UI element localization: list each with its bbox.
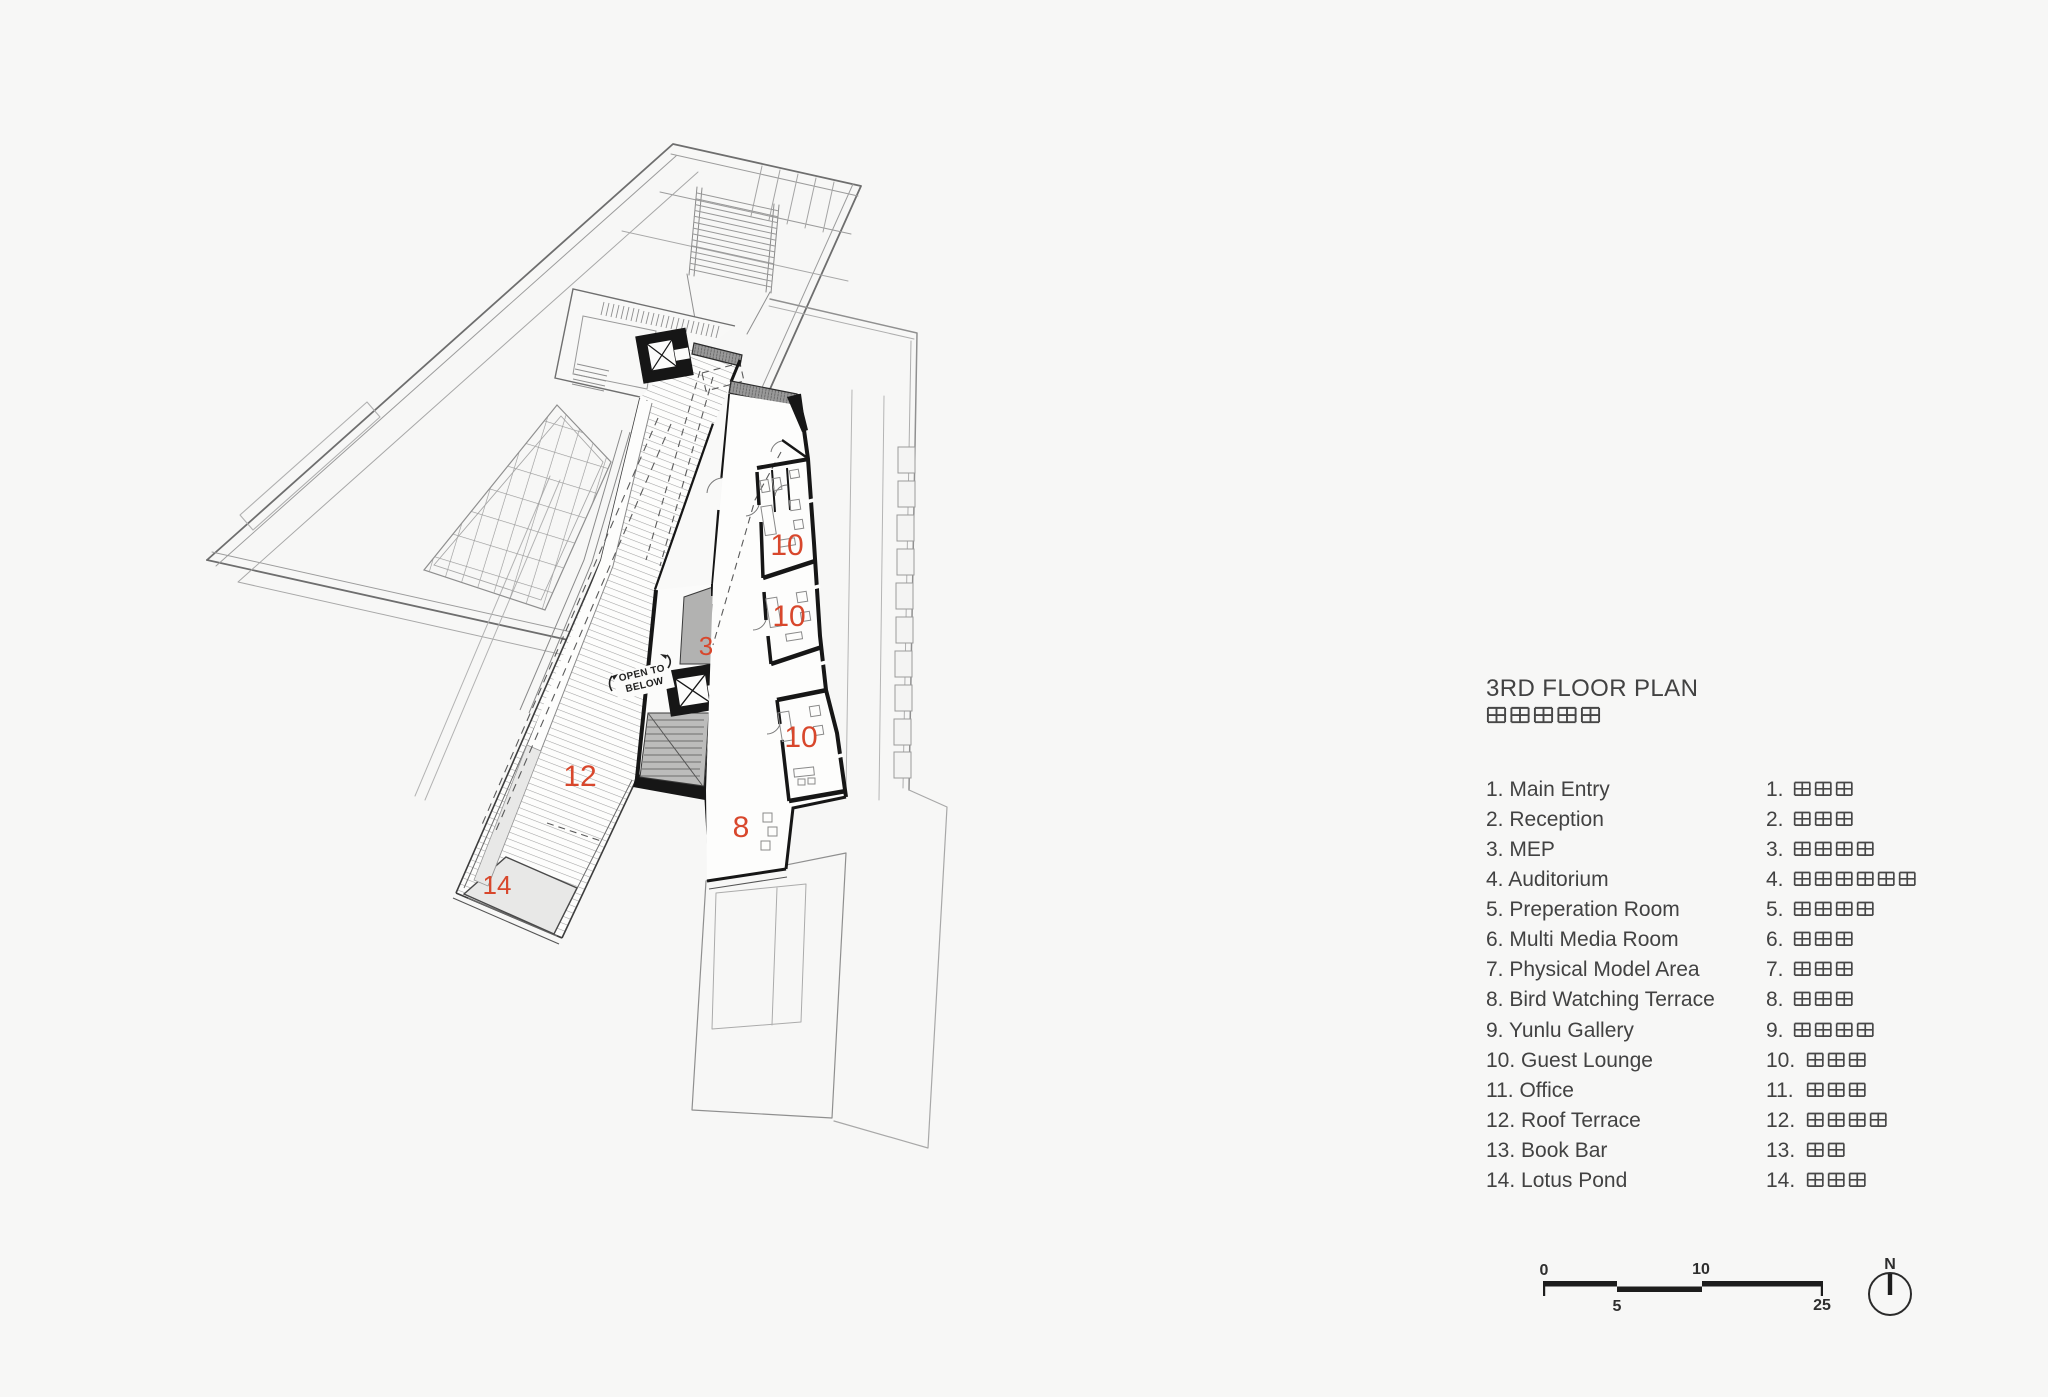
svg-text:3: 3 xyxy=(699,631,713,661)
svg-text:8. Bird Watching Terrace: 8. Bird Watching Terrace xyxy=(1486,988,1715,1011)
svg-text:10: 10 xyxy=(772,600,805,633)
svg-text:2.: 2. xyxy=(1766,808,1784,831)
svg-text:14.: 14. xyxy=(1766,1169,1795,1192)
svg-text:9. Yunlu Gallery: 9. Yunlu Gallery xyxy=(1486,1019,1634,1042)
svg-text:8.: 8. xyxy=(1766,988,1784,1011)
svg-text:10: 10 xyxy=(770,529,803,562)
svg-text:9.: 9. xyxy=(1766,1019,1784,1042)
svg-text:12.: 12. xyxy=(1766,1109,1795,1132)
svg-text:3.: 3. xyxy=(1766,838,1784,861)
svg-text:2. Reception: 2. Reception xyxy=(1486,808,1604,831)
svg-text:5: 5 xyxy=(1613,1298,1622,1315)
svg-text:14. Lotus Pond: 14. Lotus Pond xyxy=(1486,1169,1627,1192)
svg-text:4.: 4. xyxy=(1766,868,1784,891)
svg-text:5. Preperation Room: 5. Preperation Room xyxy=(1486,898,1680,921)
svg-text:10.: 10. xyxy=(1766,1049,1795,1072)
svg-text:6.: 6. xyxy=(1766,928,1784,951)
svg-text:12: 12 xyxy=(563,760,596,793)
svg-text:N: N xyxy=(1884,1256,1896,1273)
svg-text:4. Auditorium: 4. Auditorium xyxy=(1486,868,1609,891)
svg-text:7.: 7. xyxy=(1766,958,1784,981)
svg-text:12. Roof Terrace: 12. Roof Terrace xyxy=(1486,1109,1641,1132)
svg-text:11.: 11. xyxy=(1766,1079,1794,1102)
svg-text:14: 14 xyxy=(483,870,512,900)
svg-text:7. Physical Model Area: 7. Physical Model Area xyxy=(1486,958,1700,981)
svg-text:10. Guest Lounge: 10. Guest Lounge xyxy=(1486,1049,1653,1072)
svg-text:10: 10 xyxy=(1692,1261,1710,1278)
svg-text:3RD FLOOR PLAN: 3RD FLOOR PLAN xyxy=(1486,675,1698,702)
svg-text:11. Office: 11. Office xyxy=(1486,1079,1574,1102)
svg-text:13. Book Bar: 13. Book Bar xyxy=(1486,1139,1607,1162)
svg-text:5.: 5. xyxy=(1766,898,1784,921)
svg-text:3. MEP: 3. MEP xyxy=(1486,838,1555,861)
svg-text:6. Multi Media Room: 6. Multi Media Room xyxy=(1486,928,1679,951)
svg-text:25: 25 xyxy=(1813,1297,1831,1314)
svg-text:10: 10 xyxy=(784,721,817,754)
svg-text:1.: 1. xyxy=(1766,778,1784,801)
svg-text:8: 8 xyxy=(733,811,750,844)
svg-text:0: 0 xyxy=(1540,1262,1549,1279)
svg-text:13.: 13. xyxy=(1766,1139,1795,1162)
svg-text:1. Main Entry: 1. Main Entry xyxy=(1486,778,1610,801)
